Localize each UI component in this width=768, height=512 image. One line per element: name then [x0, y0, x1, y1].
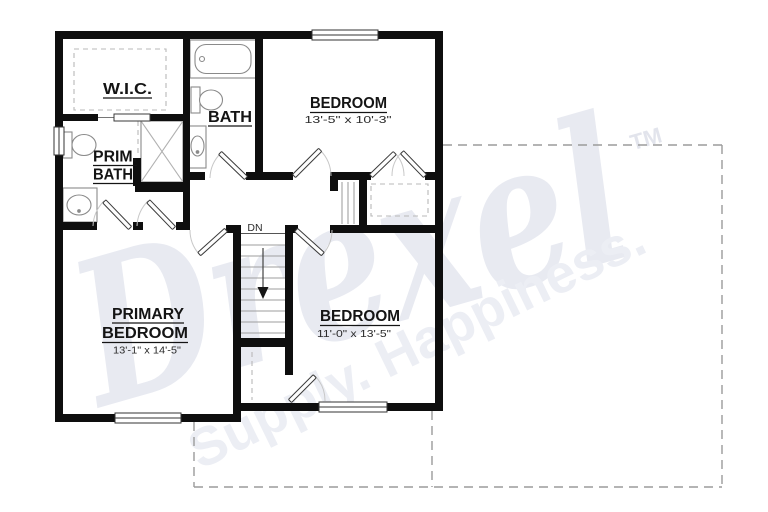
wall-hall-right	[330, 225, 443, 233]
bath-label: BATH	[208, 109, 252, 126]
prim-bath-label-line2: BATH	[93, 167, 133, 184]
wall-bedroom-top-bottom-c	[425, 172, 435, 180]
wall-under-stair-left	[233, 347, 241, 414]
bedroom-top-dims: 13'-5" x 10'-3"	[305, 114, 392, 126]
floor-plan-svg: Drexel TM Supply. Happiness.	[0, 0, 768, 512]
bathtub-drain	[200, 57, 205, 62]
primary-bedroom-dims: 13'-1" x 14'-5"	[113, 345, 181, 357]
wall-stair-left	[233, 225, 241, 347]
wall-exterior-right	[435, 31, 443, 411]
window-bedroom-top	[312, 30, 378, 40]
primary-bedroom-label-line2: BEDROOM	[102, 325, 188, 342]
primary-bedroom-label-line1: PRIMARY	[112, 306, 184, 323]
wall-wic-bottom-right	[150, 114, 183, 121]
wall-exterior-top	[55, 31, 443, 39]
bath-door-arc	[210, 153, 221, 178]
wic-label: W.I.C.	[103, 81, 152, 98]
wall-bath-bedroom-divider	[255, 39, 263, 180]
wall-linen-right	[359, 180, 367, 233]
window-prim-bath	[54, 127, 64, 155]
wall-exterior-left	[55, 31, 63, 422]
wic-pocket-door	[114, 114, 150, 121]
wall-stair-right	[285, 225, 293, 375]
bedroom-bottom-label: BEDROOM	[320, 308, 400, 325]
wall-wic-bath-divider	[183, 39, 190, 230]
prim-bath-label-line1: PRIM.	[93, 149, 137, 166]
watermark-tm-text: TM	[627, 122, 664, 155]
wic-shelving-dashed	[74, 49, 166, 110]
window-bedroom-bottom	[319, 402, 387, 412]
wall-primbath-bottom	[63, 222, 97, 230]
stairs-dn-label: DN	[247, 222, 262, 234]
bath-toilet-tank	[191, 87, 200, 113]
wall-primbath-corner	[176, 222, 190, 230]
wall-bath-bottom	[183, 172, 205, 180]
wall-shower-bottom	[135, 182, 183, 192]
bath-sink-drain	[196, 151, 199, 154]
wall-bedroom-top-bottom-b	[330, 172, 371, 180]
wall-primbath-post	[133, 222, 143, 230]
wall-bedroom-top-bottom-a	[246, 172, 293, 180]
wall-linen-post	[330, 180, 338, 191]
floor-plan-page: Drexel TM Supply. Happiness.	[0, 0, 768, 512]
bath-toilet-bowl	[200, 90, 223, 110]
bedroom-bottom-dims: 11'-0" x 13'-5"	[317, 328, 391, 340]
prim-sink-drain	[78, 210, 81, 213]
bedroom-top-label: BEDROOM	[310, 95, 387, 112]
wall-stair-bottom	[233, 338, 293, 347]
window-primary-bedroom	[115, 413, 181, 423]
wall-wic-bottom-left	[63, 114, 98, 121]
